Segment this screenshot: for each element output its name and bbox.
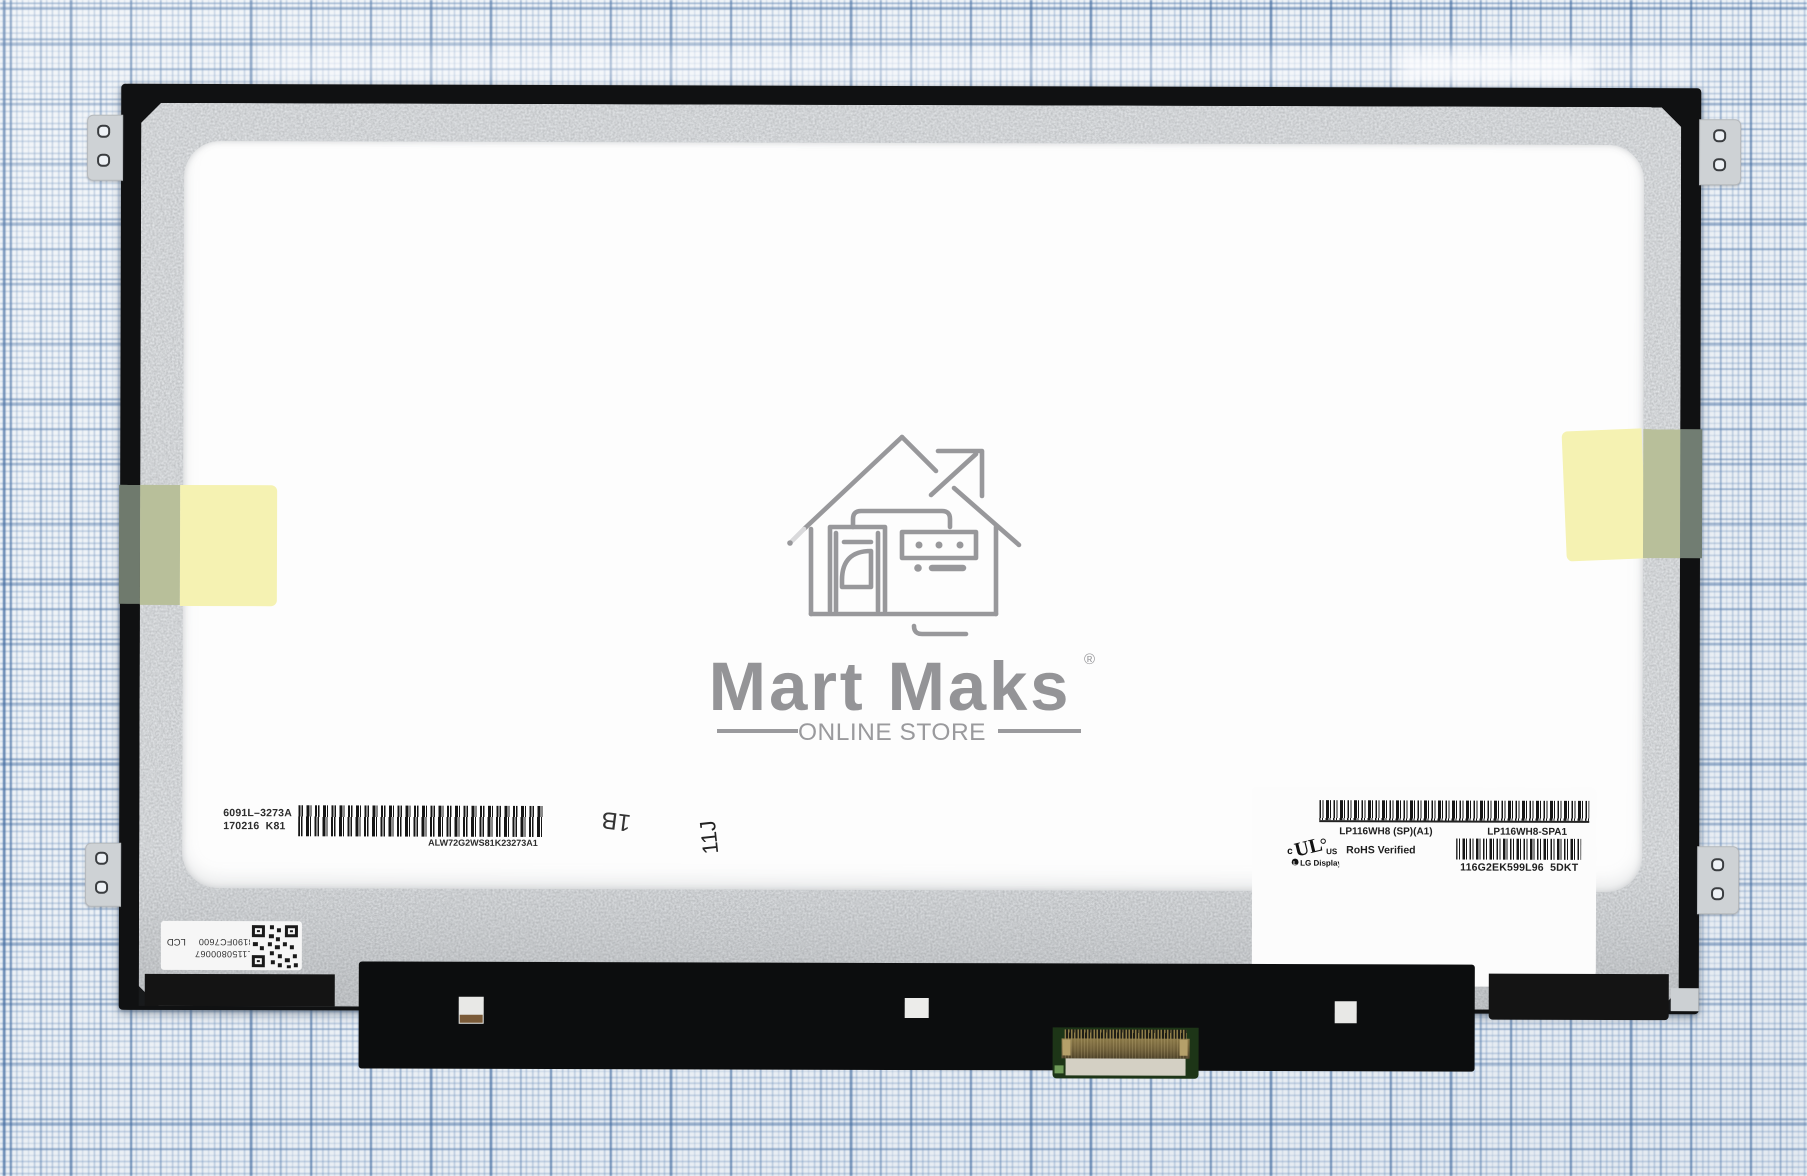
svg-text:c: c (1287, 846, 1293, 857)
svg-text:L: L (1293, 861, 1297, 867)
svg-text:US: US (1326, 847, 1338, 856)
svg-text:LG Display: LG Display (1300, 859, 1339, 868)
